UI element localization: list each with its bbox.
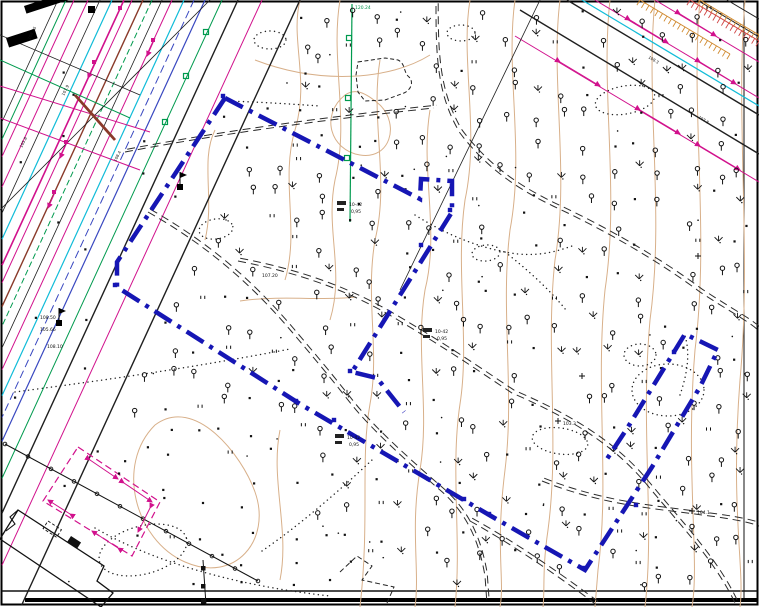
map-label: 0,95 [437, 336, 447, 342]
map-label: 103.3 [563, 421, 576, 427]
map-label: 120.24 [355, 5, 371, 11]
map-label: 108.10 [47, 344, 63, 350]
map-label: 104.1 [697, 510, 710, 516]
map-canvas: 10-420,9510-420,9510-420,95104.1103.3107… [0, 0, 759, 607]
map-label: 0,95 [349, 442, 359, 448]
map-frame [2, 2, 758, 605]
map-label: 10-42 [347, 435, 360, 441]
survey-map-page: 10-420,9510-420,9510-420,95104.1103.3107… [0, 0, 759, 607]
map-label: 10-42 [349, 202, 362, 208]
map-label: 0,95 [351, 209, 361, 215]
map-label: 10-42 [435, 329, 448, 335]
map-label: 107.20 [262, 273, 278, 279]
map-label: 108.50 [40, 315, 56, 321]
map-label: 105.66 [40, 327, 56, 333]
